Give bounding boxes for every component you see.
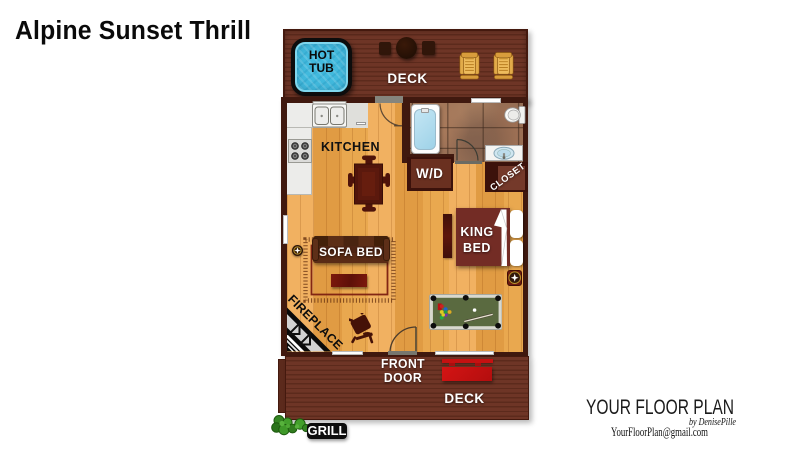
svg-text:YourFloorPlan@gmail.com: YourFloorPlan@gmail.com — [611, 424, 708, 439]
